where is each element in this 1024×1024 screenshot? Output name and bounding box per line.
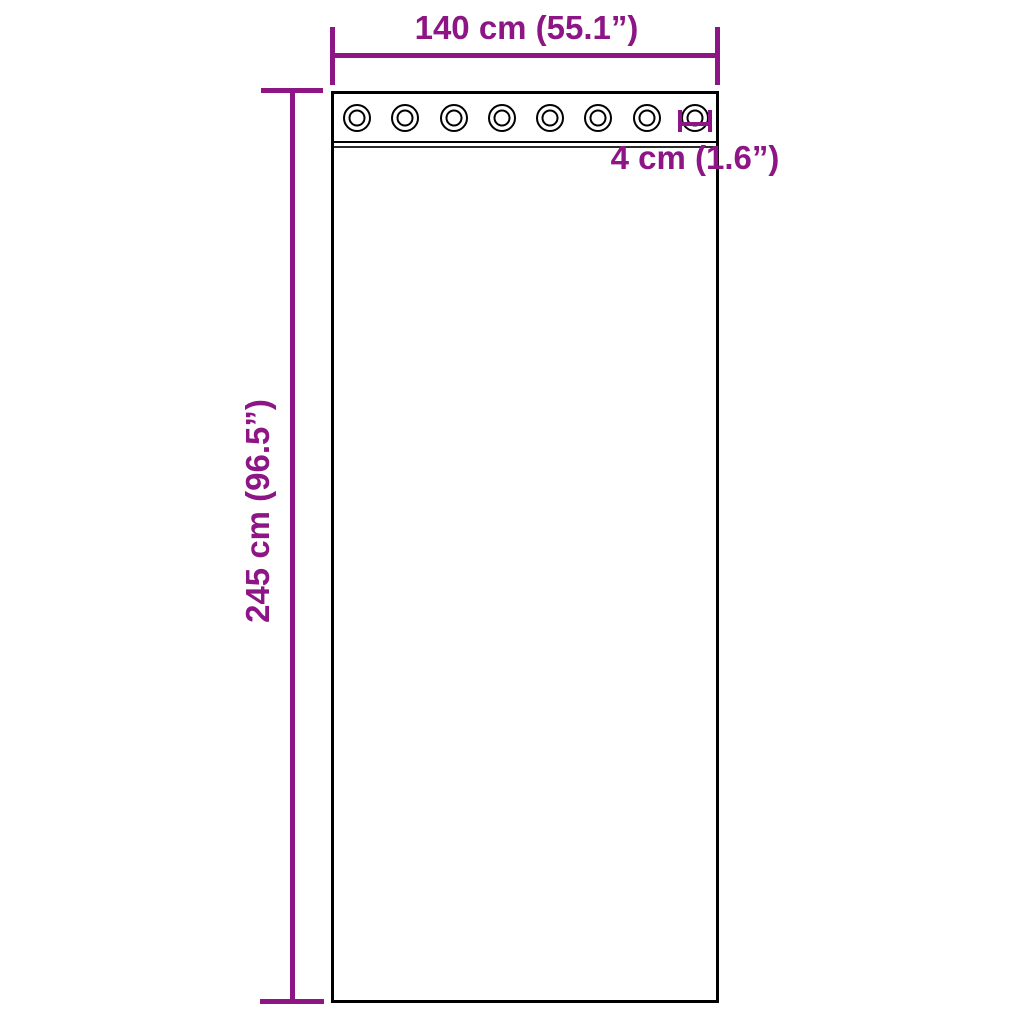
grommet-icon bbox=[391, 104, 419, 132]
grommet-dimension-line bbox=[678, 122, 712, 126]
height-dimension-tick-bottom bbox=[260, 999, 324, 1004]
grommet-inner-ring bbox=[494, 110, 511, 127]
height-dimension-line bbox=[290, 91, 295, 1004]
grommet-icon bbox=[633, 104, 661, 132]
grommet-icon bbox=[488, 104, 516, 132]
grommet-inner-ring bbox=[397, 110, 414, 127]
grommet-inner-ring bbox=[542, 110, 559, 127]
grommet-icon bbox=[584, 104, 612, 132]
grommet-inner-ring bbox=[590, 110, 607, 127]
width-dimension-label: 140 cm (55.1”) bbox=[333, 10, 720, 46]
dimension-diagram: 140 cm (55.1”) 245 cm (96.5”) 4 cm (1.6”… bbox=[0, 0, 1024, 1024]
grommet-inner-ring bbox=[446, 110, 463, 127]
grommet-icon bbox=[536, 104, 564, 132]
grommet-icon bbox=[440, 104, 468, 132]
grommet-icon bbox=[681, 104, 709, 132]
height-dimension-label: 245 cm (96.5”) bbox=[240, 399, 276, 623]
height-dimension-tick-top bbox=[261, 88, 323, 93]
grommet-inner-ring bbox=[639, 110, 656, 127]
grommet-dimension-tick-right bbox=[708, 110, 712, 132]
curtain-panel-outline bbox=[331, 91, 719, 1003]
grommet-inner-ring bbox=[349, 110, 366, 127]
grommet-dimension-label: 4 cm (1.6”) bbox=[611, 140, 780, 176]
width-dimension-line bbox=[333, 53, 718, 58]
grommet-icon bbox=[343, 104, 371, 132]
grommet-dimension-tick-left bbox=[678, 110, 682, 132]
